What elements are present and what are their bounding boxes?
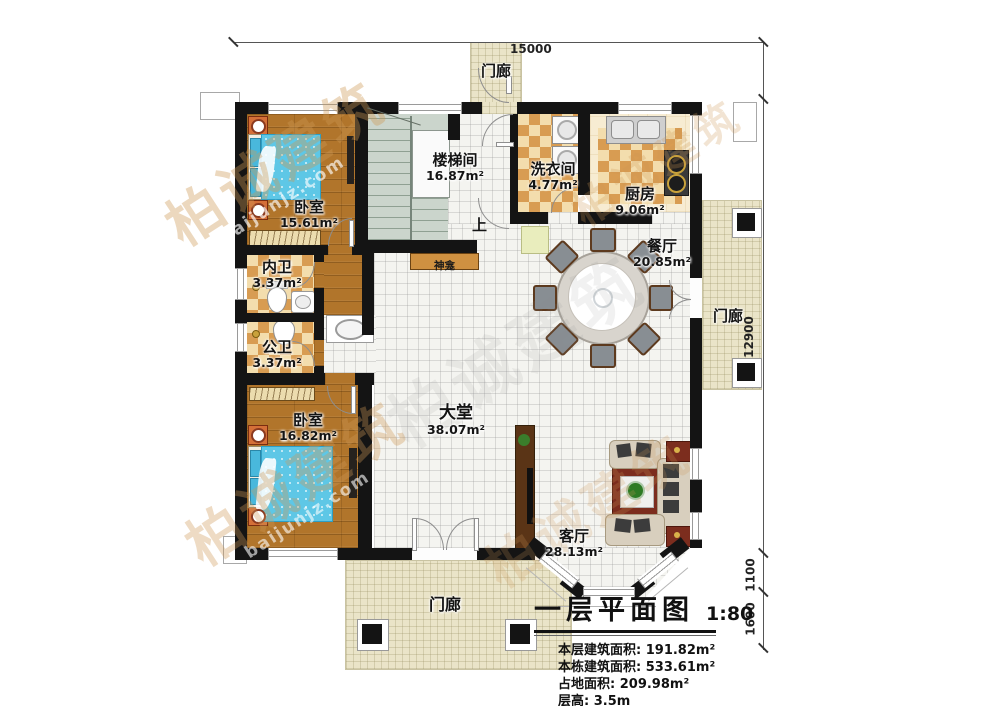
room-name: 门廊 (403, 596, 487, 614)
entry-door-opening (482, 102, 517, 114)
wall-right (690, 318, 702, 448)
room-label-porch-top: 门廊 (446, 63, 546, 80)
dining-table-center (593, 288, 613, 308)
wall-bottom (477, 548, 535, 560)
stat-value: 533.61m² (646, 660, 715, 675)
stat-value: 191.82m² (646, 643, 715, 658)
bedroom2-wardrobe (249, 387, 315, 401)
room-label-bedroom2: 卧室 16.82m² (258, 412, 358, 443)
stove-burner-icon (667, 155, 686, 174)
plumbing-valve (252, 330, 260, 338)
room-label-hall: 大堂 38.07m² (406, 404, 506, 437)
stair-treads-right (412, 198, 448, 240)
dimension-right-mid-value: 1100 (744, 558, 758, 591)
bedroom2-window (268, 548, 338, 560)
wall-right (690, 478, 702, 512)
stat-row: 本栋建筑面积: 533.61m² (558, 659, 753, 676)
room-name: 客厅 (528, 528, 620, 545)
title-underline-2 (534, 635, 716, 636)
room-label-kitchen: 厨房 9.06m² (592, 186, 688, 217)
dimension-top-value: 15000 (510, 42, 552, 56)
room-label-porch-bottom: 门廊 (403, 596, 487, 614)
living-window-1 (690, 448, 702, 480)
room-area: 9.06m² (592, 203, 688, 217)
room-area: 16.82m² (258, 429, 358, 443)
room-area: 38.07m² (406, 423, 506, 437)
sofa-cushion (635, 442, 651, 457)
room-name: 厨房 (592, 186, 688, 203)
wall-top (460, 102, 482, 114)
washing-machine-door (557, 120, 577, 140)
dimension-right-main-value: 12900 (742, 316, 756, 358)
sofa-cushion (663, 464, 679, 478)
room-name: 卧室 (259, 199, 359, 216)
bedroom1-tv (347, 136, 354, 184)
dining-chair (533, 285, 557, 311)
kitchen-side-window (690, 115, 702, 174)
wall-top (517, 102, 618, 114)
title-underline (534, 630, 716, 633)
corridor-floor (322, 255, 362, 315)
wall-bedroom2-right (358, 385, 372, 548)
bedroom2-door-threshold (325, 373, 355, 385)
stat-label: 本栋建筑面积: (558, 660, 646, 675)
exterior-platform (200, 92, 240, 120)
main-door-leaf (474, 518, 479, 551)
room-label-bedroom1: 卧室 15.61m² (259, 199, 359, 230)
stat-row: 占地面积: 209.98m² (558, 676, 753, 693)
stat-label: 占地面积: (558, 677, 620, 692)
main-door-leaf (412, 518, 417, 551)
stairs-up-label: 上 (472, 214, 487, 235)
wall-bedroom2-top (235, 373, 325, 385)
stat-value: 3.5m (594, 694, 631, 706)
living-window-2 (690, 512, 702, 540)
wall-bedroom1-bottom (235, 245, 328, 255)
wall-corridor-stub (362, 253, 374, 335)
room-label-laundry: 洗衣间 4.77m² (505, 161, 601, 192)
porch-column (362, 624, 382, 644)
stat-row: 本层建筑面积: 191.82m² (558, 642, 753, 659)
room-name: 卧室 (258, 412, 358, 429)
dining-chair (590, 228, 616, 252)
plant-icon (628, 483, 643, 498)
stat-value: 209.98m² (620, 677, 689, 692)
kitchen-window (618, 102, 672, 114)
room-area: 28.13m² (528, 545, 620, 559)
wall-stair-bottom (360, 240, 477, 253)
stat-label: 层高: (558, 694, 594, 706)
bath-sink-bowl (295, 295, 311, 309)
wall-right (690, 102, 702, 115)
room-label-bath-public: 公卫 3.37m² (237, 339, 317, 370)
room-area: 3.37m² (237, 356, 317, 370)
title-block: 一层平面图 1:80 本层建筑面积: 191.82m² 本栋建筑面积: 533.… (534, 588, 753, 706)
room-area: 16.87m² (400, 169, 510, 183)
room-name: 大堂 (406, 404, 506, 423)
room-label-dining: 餐厅 20.85m² (616, 238, 708, 269)
room-name: 楼梯间 (400, 152, 510, 169)
cabinet-knob-icon (674, 447, 680, 453)
bedroom1-window (268, 102, 338, 114)
sofa-cushion (663, 500, 679, 513)
lamp-icon (251, 509, 266, 524)
room-name: 门廊 (446, 63, 546, 80)
sofa-cushion (616, 443, 632, 458)
room-label-stairwell: 楼梯间 16.87m² (400, 152, 510, 183)
wall-left (235, 102, 247, 268)
wall-bottom (235, 548, 268, 560)
plan-stats: 本层建筑面积: 191.82m² 本栋建筑面积: 533.61m² 占地面积: … (558, 642, 753, 706)
stairwell-window (398, 102, 462, 114)
bedroom2-door-leaf (351, 386, 356, 414)
room-name: 内卫 (237, 259, 317, 276)
sofa-cushion (663, 482, 679, 496)
plant-icon (518, 434, 530, 446)
entry-door-leaf (496, 142, 514, 147)
room-label-bath-inner: 内卫 3.37m² (237, 259, 317, 290)
wall-bedroom2-top (355, 373, 374, 385)
porch-column (737, 363, 755, 381)
room-name: 餐厅 (616, 238, 708, 255)
shrine-label: 神龛 (434, 260, 455, 272)
room-name: 公卫 (237, 339, 317, 356)
dimension-line-right (763, 42, 764, 650)
wall-bedroom1-stair (355, 102, 368, 253)
porch-column (510, 624, 530, 644)
bedroom1-wardrobe (249, 230, 321, 246)
room-area: 3.37m² (237, 276, 317, 290)
wall-between-baths (235, 313, 324, 322)
shrine: 神龛 (410, 253, 479, 270)
bedroom2-tv (349, 448, 357, 498)
dining-chair (649, 285, 673, 311)
stat-label: 本层建筑面积: (558, 643, 646, 658)
living-tv (527, 468, 533, 524)
room-area: 4.77m² (505, 178, 601, 192)
wall-laundry-bottom (510, 212, 548, 224)
kitchen-sink-bowl (637, 120, 660, 139)
room-area: 15.61m² (259, 216, 359, 230)
shoe-cabinet (521, 226, 549, 254)
room-area: 20.85m² (616, 255, 708, 269)
wall-bottom (336, 548, 412, 560)
dimension-line-top (233, 42, 763, 43)
exterior-platform (733, 102, 757, 142)
plan-title: 一层平面图 (534, 588, 694, 627)
room-name: 洗衣间 (505, 161, 601, 178)
lamp-icon (251, 119, 266, 134)
laundry-door-gap (548, 212, 578, 224)
dining-chair (590, 344, 616, 368)
stat-row: 层高: 3.5m (558, 693, 753, 706)
porch-column (737, 213, 755, 231)
kitchen-sink-bowl (611, 120, 634, 139)
plan-scale: 1:80 (706, 603, 753, 627)
sofa-cushion (633, 518, 650, 533)
room-label-living: 客厅 28.13m² (528, 528, 620, 559)
floor-plan: 神龛 (0, 0, 1000, 706)
